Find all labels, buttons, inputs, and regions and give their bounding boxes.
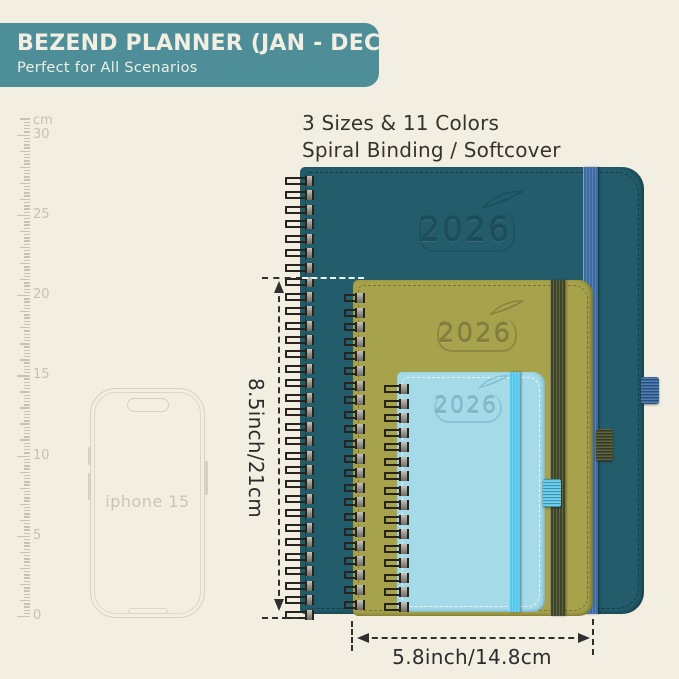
ruler-tick <box>20 151 30 152</box>
spiral-ring <box>285 394 314 402</box>
spiral-ring <box>285 452 314 460</box>
spiral-ring <box>344 542 365 550</box>
spiral-ring <box>285 191 314 199</box>
ruler-tick <box>20 327 30 328</box>
ruler-tick <box>24 250 30 251</box>
ruler-tick <box>20 391 30 392</box>
spiral-ring <box>344 484 365 492</box>
ruler-tick <box>24 561 30 562</box>
ruler-tick <box>24 362 30 363</box>
ruler-tick <box>20 552 30 553</box>
ruler-tick <box>24 122 30 123</box>
feather-icon <box>478 374 510 390</box>
ruler-tick <box>17 536 30 537</box>
ruler-tick <box>20 600 30 601</box>
ruler-tick <box>24 388 30 389</box>
ruler-tick <box>24 404 30 405</box>
spiral-ring <box>285 408 314 416</box>
ruler-tick <box>17 375 30 376</box>
ruler-tick <box>24 507 30 508</box>
spiral-ring <box>285 423 314 431</box>
ruler-tick <box>24 321 30 322</box>
planner-medium-pen-loop <box>596 429 613 461</box>
info-line-sizes: 3 Sizes & 11 Colors <box>302 110 561 137</box>
ruler-tick <box>24 334 30 335</box>
ruler-tick <box>24 350 30 351</box>
iphone-volume-button-1 <box>88 447 91 465</box>
ruler-tick <box>24 513 30 514</box>
ruler-tick <box>17 135 30 136</box>
ruler-tick <box>24 462 30 463</box>
planner-medium-elastic-band <box>550 280 565 616</box>
ruler-tick <box>24 276 30 277</box>
spiral-ring <box>285 509 314 517</box>
planner-large-year: 2026 <box>419 210 511 250</box>
iphone-side-button <box>205 461 208 495</box>
ruler-tick <box>24 324 30 325</box>
ruler-tick <box>20 472 30 473</box>
ruler-tick <box>24 484 30 485</box>
ruler-tick <box>24 244 30 245</box>
spiral-ring <box>285 596 314 604</box>
spiral-ring <box>285 206 314 214</box>
ruler-tick <box>24 378 30 379</box>
spiral-ring <box>384 574 409 582</box>
ruler-number: 0 <box>33 608 41 623</box>
ruler-tick <box>24 282 30 283</box>
arrow-down-icon <box>274 599 284 611</box>
ruler-tick <box>24 449 30 450</box>
ruler-tick <box>24 398 30 399</box>
product-infographic: cm 302520151050 iphone 15 2026 2026 <box>0 0 679 679</box>
ruler-tick <box>17 295 30 296</box>
planner-large-logo: 2026 <box>419 194 515 254</box>
ruler-tick <box>24 147 30 148</box>
ruler-tick <box>24 491 30 492</box>
ruler-tick <box>24 526 30 527</box>
ruler-tick <box>24 411 30 412</box>
product-subtitle: Perfect for All Scenarios <box>17 60 379 76</box>
ruler-tick <box>24 545 30 546</box>
ruler-tick <box>24 154 30 155</box>
ruler-tick <box>24 160 30 161</box>
product-info: 3 Sizes & 11 Colors Spiral Binding / Sof… <box>302 110 561 164</box>
ruler-tick <box>24 594 30 595</box>
spiral-ring <box>384 559 409 567</box>
ruler-tick <box>24 340 30 341</box>
ruler-tick <box>24 494 30 495</box>
spiral-ring <box>344 586 365 594</box>
spiral-ring <box>285 379 314 387</box>
ruler-tick <box>24 212 30 213</box>
height-dim-bottom-tick <box>262 617 298 619</box>
planner-small-logo: 2026 <box>434 380 502 426</box>
ruler-tick <box>24 417 30 418</box>
ruler-tick <box>24 301 30 302</box>
ruler-tick <box>24 597 30 598</box>
ruler-tick <box>24 138 30 139</box>
spiral-ring <box>344 338 365 346</box>
spiral-ring <box>344 469 365 477</box>
spiral-ring <box>285 278 314 286</box>
ruler-tick <box>24 221 30 222</box>
spiral-ring <box>344 571 365 579</box>
spiral-ring <box>384 516 409 524</box>
ruler-tick <box>20 167 30 168</box>
ruler-tick <box>24 292 30 293</box>
spiral-ring <box>344 411 365 419</box>
ruler-tick <box>24 266 30 267</box>
planner-small-year: 2026 <box>434 392 498 422</box>
ruler-tick <box>24 353 30 354</box>
ruler-tick <box>24 317 30 318</box>
spiral-ring <box>384 472 409 480</box>
ruler-tick <box>24 468 30 469</box>
ruler-tick <box>24 176 30 177</box>
spiral-ring <box>344 352 365 360</box>
ruler-tick <box>20 183 30 184</box>
ruler-tick <box>24 346 30 347</box>
spiral-ring <box>285 264 314 272</box>
spiral-ring <box>285 293 314 301</box>
ruler-number: 30 <box>33 127 50 142</box>
spiral-ring <box>344 455 365 463</box>
iphone-bottom-port <box>128 608 168 614</box>
planner-medium-year: 2026 <box>437 317 513 351</box>
ruler-tick <box>24 366 30 367</box>
width-dim-left-tick <box>351 621 353 651</box>
spiral-ring <box>285 249 314 257</box>
ruler-tick <box>24 420 30 421</box>
ruler-number: 20 <box>33 287 50 302</box>
iphone-outline: iphone 15 <box>90 388 205 618</box>
info-line-binding: Spiral Binding / Softcover <box>302 137 561 164</box>
ruler-tick <box>24 285 30 286</box>
ruler-tick <box>24 574 30 575</box>
spiral-ring <box>344 396 365 404</box>
spiral-ring <box>384 603 409 611</box>
spiral-ring <box>285 553 314 561</box>
ruler-tick <box>24 500 30 501</box>
ruler-tick <box>20 584 30 585</box>
ruler-tick <box>24 481 30 482</box>
ruler-tick <box>24 510 30 511</box>
ruler-tick <box>24 240 30 241</box>
ruler-tick <box>20 520 30 521</box>
ruler-tick <box>20 247 30 248</box>
ruler-tick <box>24 163 30 164</box>
ruler-tick <box>24 533 30 534</box>
spiral-ring <box>285 495 314 503</box>
ruler-tick <box>24 542 30 543</box>
ruler-tick <box>24 330 30 331</box>
spiral-ring <box>285 336 314 344</box>
ruler-tick <box>24 452 30 453</box>
height-dim-top-tick <box>262 277 302 279</box>
title-banner: BEZEND PLANNER (JAN - DEC) Perfect for A… <box>0 23 379 87</box>
spiral-ring <box>384 443 409 451</box>
ruler-tick <box>17 616 30 617</box>
spiral-ring <box>384 385 409 393</box>
ruler-tick <box>20 504 30 505</box>
ruler-tick <box>24 395 30 396</box>
ruler-tick <box>24 305 30 306</box>
spiral-ring <box>384 458 409 466</box>
ruler-tick <box>24 372 30 373</box>
spiral-ring <box>344 440 365 448</box>
ruler-tick <box>24 186 30 187</box>
spiral-ring <box>344 323 365 331</box>
ruler-tick <box>24 260 30 261</box>
spiral-ring <box>384 545 409 553</box>
spiral-ring <box>344 528 365 536</box>
spiral-ring <box>285 582 314 590</box>
spiral-ring <box>285 524 314 532</box>
spiral-ring <box>384 501 409 509</box>
planner-small-pen-loop <box>543 479 561 507</box>
feather-icon <box>481 189 525 211</box>
ruler-tick <box>24 237 30 238</box>
width-dim-label: 5.8inch/14.8cm <box>392 645 552 669</box>
cm-ruler: cm 302520151050 <box>0 0 60 679</box>
spiral-ring <box>344 425 365 433</box>
ruler-tick <box>24 224 30 225</box>
ruler-tick <box>20 263 30 264</box>
ruler-tick <box>24 234 30 235</box>
spiral-ring <box>344 367 365 375</box>
feather-icon <box>489 299 525 317</box>
planner-medium-logo: 2026 <box>437 303 517 355</box>
ruler-tick <box>24 433 30 434</box>
ruler-tick <box>20 359 30 360</box>
ruler-tick <box>24 523 30 524</box>
spiral-ring <box>384 588 409 596</box>
ruler-tick <box>24 128 30 129</box>
ruler-tick <box>24 497 30 498</box>
spiral-ring <box>285 307 314 315</box>
ruler-tick <box>24 401 30 402</box>
ruler-tick <box>20 343 30 344</box>
ruler-tick <box>20 311 30 312</box>
ruler-tick <box>24 195 30 196</box>
ruler-tick <box>24 613 30 614</box>
ruler-tick <box>20 199 30 200</box>
spiral-ring <box>285 538 314 546</box>
ruler-tick <box>24 549 30 550</box>
ruler-tick <box>24 170 30 171</box>
height-dim-label: 8.5inch/21cm <box>244 378 268 518</box>
height-dim-line <box>278 286 280 606</box>
ruler-tick <box>24 382 30 383</box>
ruler-tick <box>24 228 30 229</box>
spiral-ring <box>344 382 365 390</box>
width-dim-right-tick <box>592 619 594 655</box>
ruler-tick <box>24 446 30 447</box>
ruler-tick <box>24 314 30 315</box>
ruler-tick <box>24 253 30 254</box>
ruler-tick <box>24 192 30 193</box>
ruler-tick <box>24 308 30 309</box>
ruler-number: 15 <box>33 367 50 382</box>
ruler-tick <box>24 356 30 357</box>
iphone-dynamic-island <box>127 398 169 412</box>
spiral-ring <box>285 322 314 330</box>
spiral-ring <box>384 400 409 408</box>
ruler-tick <box>24 256 30 257</box>
spiral-ring <box>285 177 314 185</box>
ruler-tick <box>24 436 30 437</box>
ruler-tick <box>24 273 30 274</box>
spiral-ring <box>285 466 314 474</box>
ruler-tick <box>24 269 30 270</box>
ruler-tick <box>24 141 30 142</box>
ruler-tick <box>24 465 30 466</box>
ruler-tick <box>24 414 30 415</box>
ruler-tick <box>24 587 30 588</box>
ruler-number: 5 <box>33 528 41 543</box>
width-dim-line <box>362 637 584 639</box>
ruler-tick <box>20 439 30 440</box>
ruler-tick <box>24 430 30 431</box>
ruler-tick <box>20 118 30 119</box>
ruler-tick <box>24 157 30 158</box>
ruler-tick <box>24 516 30 517</box>
ruler-tick <box>24 218 30 219</box>
ruler-tick <box>24 385 30 386</box>
spiral-ring <box>344 498 365 506</box>
spiral-ring <box>344 601 365 609</box>
ruler-tick <box>24 189 30 190</box>
arrow-right-icon <box>578 633 590 643</box>
ruler-number: 25 <box>33 207 50 222</box>
ruler-tick <box>20 407 30 408</box>
ruler-tick <box>24 475 30 476</box>
height-dim-top-tick-overlay <box>302 277 364 279</box>
spiral-ring <box>344 294 365 302</box>
spiral-ring <box>285 480 314 488</box>
ruler-tick <box>20 231 30 232</box>
ruler-tick <box>24 555 30 556</box>
ruler-tick <box>24 427 30 428</box>
spiral-ring <box>285 567 314 575</box>
ruler-tick <box>24 571 30 572</box>
spiral-ring <box>384 530 409 538</box>
ruler-tick <box>24 337 30 338</box>
ruler-tick <box>20 423 30 424</box>
arrow-left-icon <box>357 633 369 643</box>
ruler-tick <box>24 581 30 582</box>
ruler-tick <box>24 478 30 479</box>
spiral-ring <box>344 557 365 565</box>
ruler-tick <box>24 577 30 578</box>
ruler-tick <box>24 443 30 444</box>
arrow-up-icon <box>274 281 284 293</box>
ruler-tick <box>24 173 30 174</box>
ruler-tick <box>24 208 30 209</box>
spiral-ring <box>344 513 365 521</box>
ruler-tick <box>24 459 30 460</box>
spiral-ring <box>384 429 409 437</box>
ruler-tick <box>17 215 30 216</box>
spiral-ring <box>344 309 365 317</box>
ruler-tick <box>24 565 30 566</box>
ruler-tick <box>24 558 30 559</box>
ruler-tick <box>24 603 30 604</box>
ruler-tick <box>24 205 30 206</box>
ruler-tick <box>17 456 30 457</box>
spiral-ring <box>384 414 409 422</box>
spiral-ring <box>285 350 314 358</box>
ruler-tick <box>24 539 30 540</box>
spiral-ring <box>285 437 314 445</box>
ruler-tick <box>24 529 30 530</box>
spiral-ring <box>285 365 314 373</box>
planner-large-pen-loop <box>641 377 659 404</box>
ruler-tick <box>24 606 30 607</box>
iphone-volume-button-2 <box>88 473 91 500</box>
product-title: BEZEND PLANNER (JAN - DEC) <box>17 31 379 56</box>
ruler-tick <box>24 590 30 591</box>
ruler-tick <box>24 131 30 132</box>
planner-small-elastic-band <box>509 372 520 612</box>
ruler-tick <box>24 125 30 126</box>
ruler-tick <box>20 568 30 569</box>
ruler-tick <box>24 610 30 611</box>
ruler-tick <box>20 279 30 280</box>
spiral-ring <box>285 235 314 243</box>
ruler-tick <box>24 202 30 203</box>
spiral-ring <box>285 220 314 228</box>
ruler-tick <box>20 488 30 489</box>
iphone-label: iphone 15 <box>91 492 204 511</box>
ruler-tick <box>24 298 30 299</box>
ruler-tick <box>24 179 30 180</box>
ruler-tick <box>24 289 30 290</box>
ruler-number: 10 <box>33 448 50 463</box>
ruler-tick <box>24 369 30 370</box>
ruler-tick <box>24 144 30 145</box>
spiral-ring <box>384 487 409 495</box>
